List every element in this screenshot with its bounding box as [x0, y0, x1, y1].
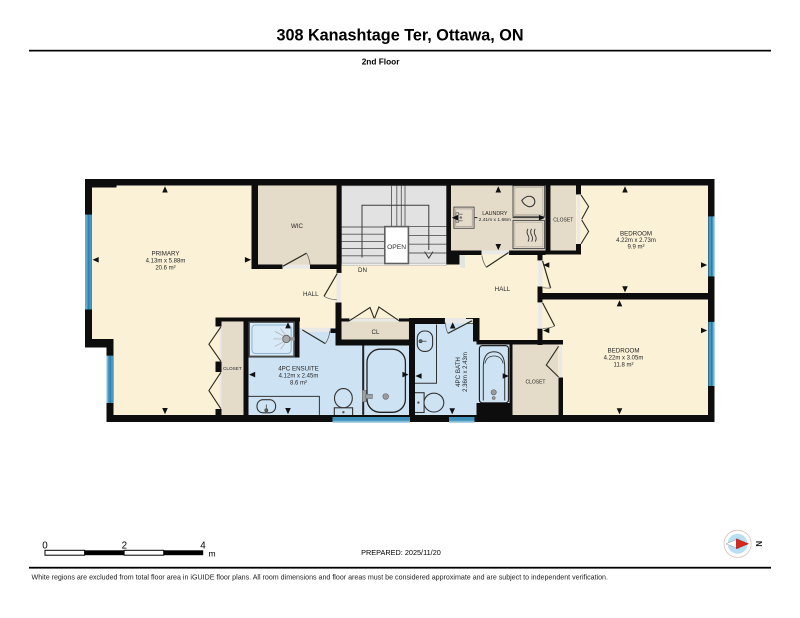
svg-text:20.6 m²: 20.6 m²: [155, 266, 175, 272]
svg-text:PREPARED: 2025/11/20: PREPARED: 2025/11/20: [361, 548, 441, 557]
svg-text:HALL: HALL: [495, 286, 511, 293]
svg-text:WIC: WIC: [291, 223, 304, 230]
svg-text:0: 0: [42, 540, 48, 551]
svg-text:CLOSET: CLOSET: [223, 366, 242, 371]
svg-text:N: N: [754, 541, 763, 547]
svg-text:9.9 m²: 9.9 m²: [627, 245, 644, 251]
svg-text:BEDROOM: BEDROOM: [620, 230, 652, 237]
svg-text:White regions are excluded fro: White regions are excluded from total fl…: [32, 574, 609, 582]
svg-text:2nd Floor: 2nd Floor: [362, 57, 401, 67]
svg-text:CL: CL: [372, 329, 380, 336]
svg-text:4.22m x 2.73m: 4.22m x 2.73m: [616, 238, 656, 244]
svg-text:OPEN: OPEN: [387, 244, 406, 251]
svg-text:m: m: [209, 548, 216, 558]
svg-text:CLOSET: CLOSET: [553, 217, 573, 223]
svg-text:BEDROOM: BEDROOM: [608, 348, 640, 355]
svg-text:4.12m x 2.45m: 4.12m x 2.45m: [279, 374, 319, 380]
svg-text:11.8 m²: 11.8 m²: [614, 363, 634, 369]
svg-text:PRIMARY: PRIMARY: [151, 251, 179, 258]
svg-text:2.36m x 2.43m: 2.36m x 2.43m: [463, 352, 469, 392]
svg-text:4.22m x 3.05m: 4.22m x 3.05m: [604, 356, 644, 362]
svg-text:2: 2: [122, 540, 127, 551]
svg-text:4PC ENSUITE: 4PC ENSUITE: [278, 366, 319, 373]
svg-text:4PC BATH: 4PC BATH: [455, 357, 462, 387]
svg-text:308 Kanashtage Ter, Ottawa, ON: 308 Kanashtage Ter, Ottawa, ON: [276, 27, 523, 45]
svg-text:4: 4: [200, 540, 206, 551]
svg-text:2.41m x 1.66m: 2.41m x 1.66m: [479, 217, 511, 223]
svg-text:8.6 m²: 8.6 m²: [290, 381, 307, 387]
svg-text:DN: DN: [358, 267, 367, 274]
svg-text:4.13m x 5.88m: 4.13m x 5.88m: [146, 259, 186, 265]
svg-text:LAUNDRY: LAUNDRY: [482, 211, 508, 217]
svg-text:CLOSET: CLOSET: [525, 379, 545, 385]
svg-text:HALL: HALL: [303, 291, 319, 298]
